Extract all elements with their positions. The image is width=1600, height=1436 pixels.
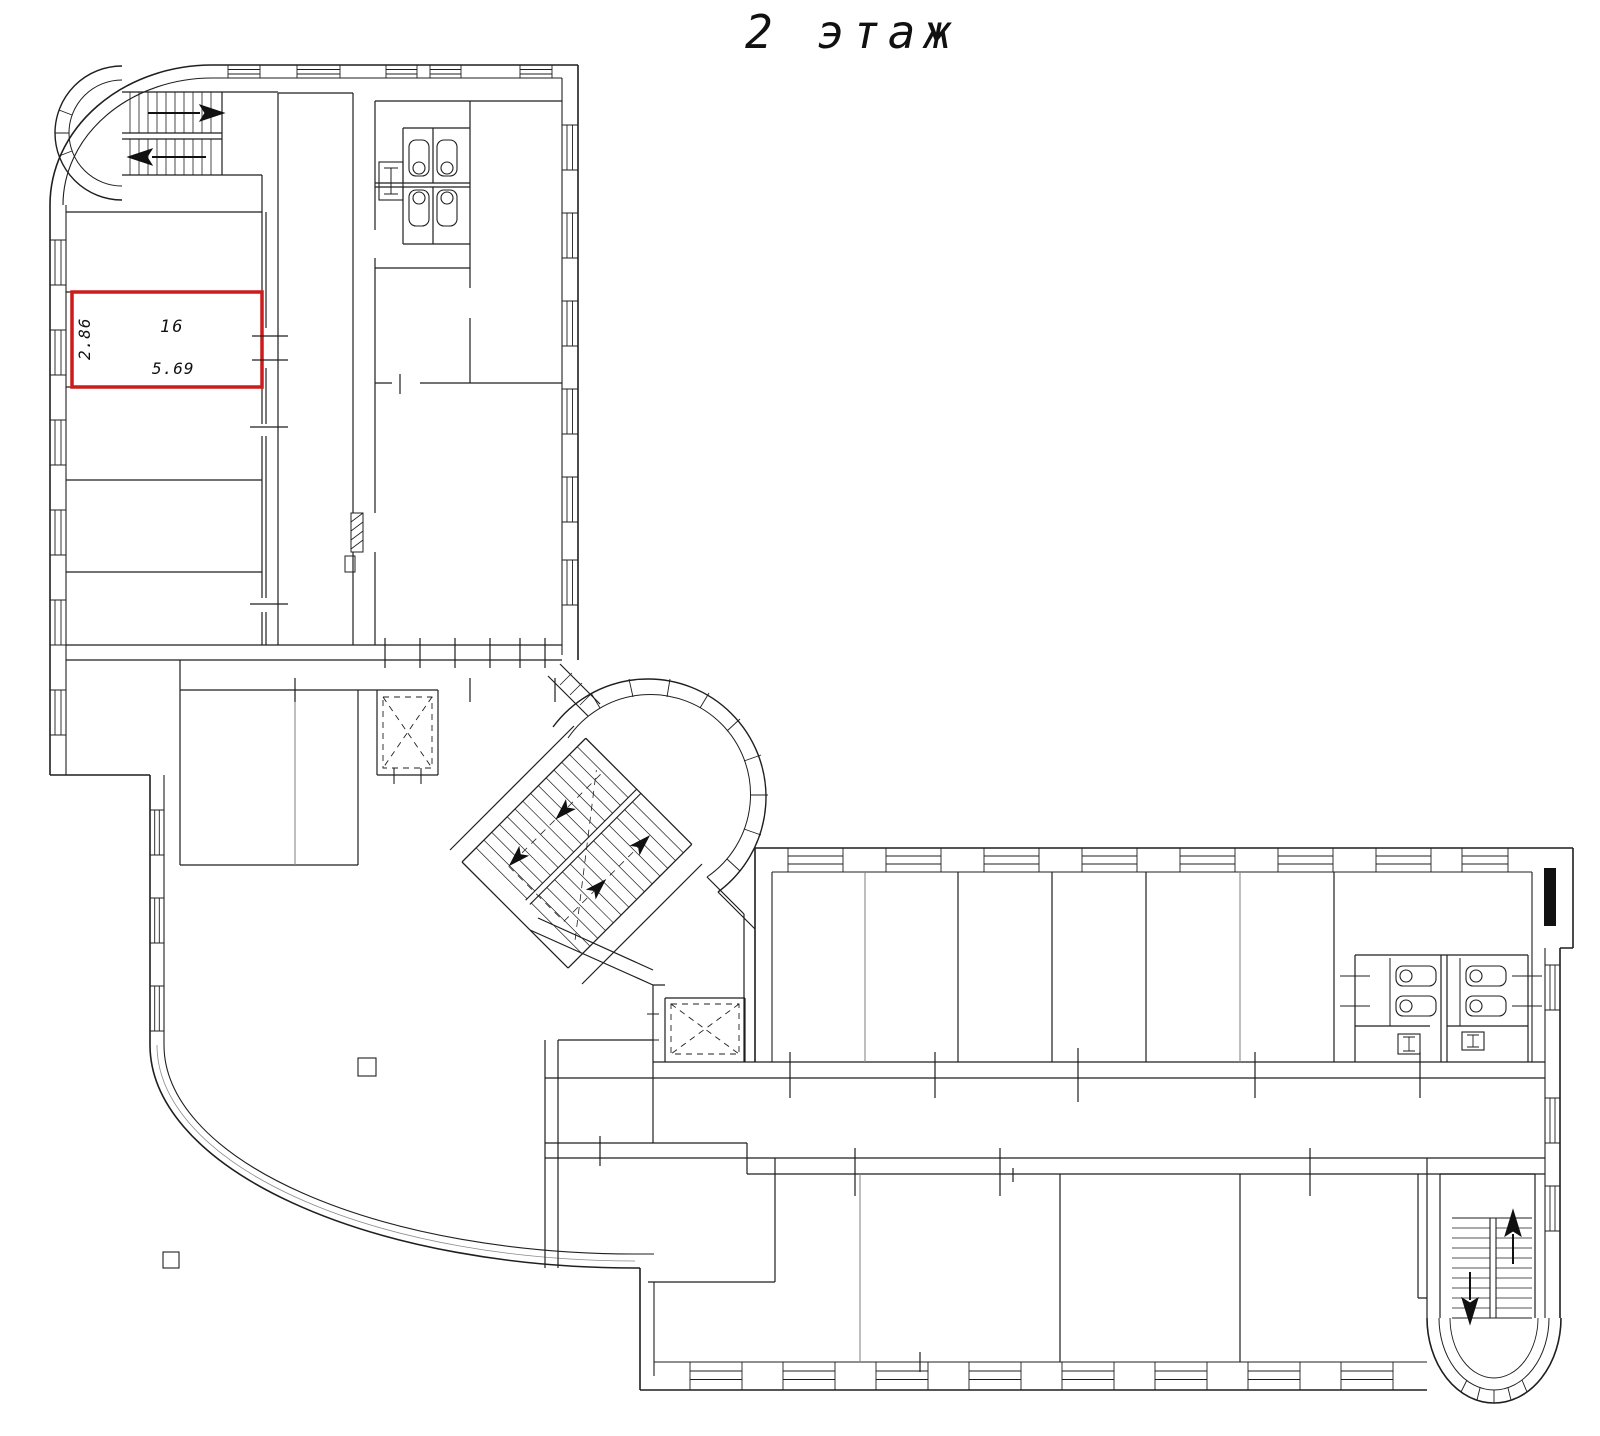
column-icon: [358, 1058, 376, 1076]
room-depth-label: 2.86: [75, 317, 94, 360]
floor-title: 2 этаж: [745, 5, 959, 59]
stair-upper-left-arrows: [128, 105, 224, 165]
highlighted-room[interactable]: 16 5.69 2.86: [72, 292, 288, 387]
toilet-bowl-icon: [1400, 1000, 1412, 1012]
window-symbols: [50, 65, 1560, 1390]
inner-walls: [63, 78, 1545, 1376]
toilet-bowl-icon: [413, 192, 425, 204]
sink-icon: [379, 162, 403, 200]
stair-bottom-right: [1427, 1158, 1549, 1403]
toilet-icon: [1466, 996, 1506, 1016]
door-ticks: [250, 374, 1420, 1372]
toilet-icon: [409, 140, 429, 176]
elevator-x-icon: [671, 1004, 739, 1054]
arrow-down-icon: [1462, 1298, 1478, 1324]
elevator-shaft-2: [647, 998, 745, 1062]
stair-bottom-right-arrows: [1462, 1210, 1521, 1324]
hatched-wall-segment: [345, 513, 363, 572]
toilet-icon: [1396, 966, 1436, 986]
structural-columns: [163, 1058, 376, 1268]
toilet-icon: [409, 190, 429, 226]
arrow-ne-icon: [586, 874, 611, 899]
elevator-x-icon: [383, 697, 432, 768]
muted-dividers: [295, 690, 1240, 1362]
toilet-bowl-icon: [1400, 970, 1412, 982]
stair-upper-left: [55, 66, 262, 212]
right-wing-walls: [958, 872, 1528, 1362]
toilet-bowl-icon: [1470, 970, 1482, 982]
room-width-label: 5.69: [152, 359, 195, 378]
toilet-bowl-icon: [441, 162, 453, 174]
stair-central: [462, 738, 692, 968]
elevator-shaft-1: [377, 690, 438, 784]
sink-icon: [1398, 1034, 1420, 1054]
arrow-up-icon: [1505, 1210, 1521, 1236]
toilet-bowl-icon: [441, 192, 453, 204]
toilet-bowl-icon: [1470, 1000, 1482, 1012]
left-wing-walls: [66, 92, 562, 865]
rotunda-glazing: [450, 664, 768, 1062]
floor-plan-page: 16 5.69 2.86 2 этаж: [0, 0, 1600, 1436]
center-south-walls: [545, 985, 1545, 1282]
solid-wall-shaft: [1544, 868, 1556, 926]
toilet-icon: [437, 140, 457, 176]
toilet-icon: [1466, 966, 1506, 986]
column-icon: [163, 1252, 179, 1268]
toilet-icon: [437, 190, 457, 226]
toilet-icon: [1396, 996, 1436, 1016]
arrow-right-icon: [200, 105, 224, 121]
toilet-bowl-icon: [413, 162, 425, 174]
floor-plan-svg: 16 5.69 2.86 2 этаж: [0, 0, 1600, 1436]
sink-icon: [1462, 1032, 1484, 1050]
room-number-label: 16: [160, 317, 184, 337]
